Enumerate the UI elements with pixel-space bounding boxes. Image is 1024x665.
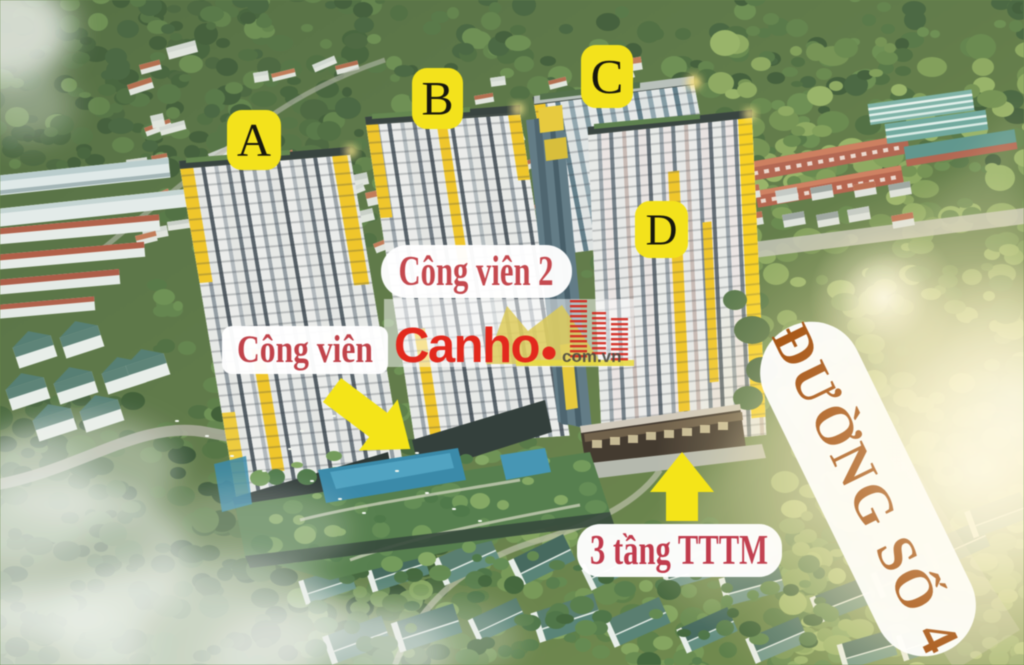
svg-text:Công viên: Công viên	[237, 328, 373, 371]
svg-text:D: D	[646, 205, 678, 254]
svg-text:Công viên 2: Công viên 2	[399, 249, 554, 295]
svg-text:A: A	[237, 115, 271, 167]
svg-text:B: B	[421, 72, 453, 125]
svg-text:Canho: Canho	[394, 319, 540, 373]
svg-text:com.vn: com.vn	[562, 347, 622, 366]
svg-text:C: C	[591, 49, 624, 104]
